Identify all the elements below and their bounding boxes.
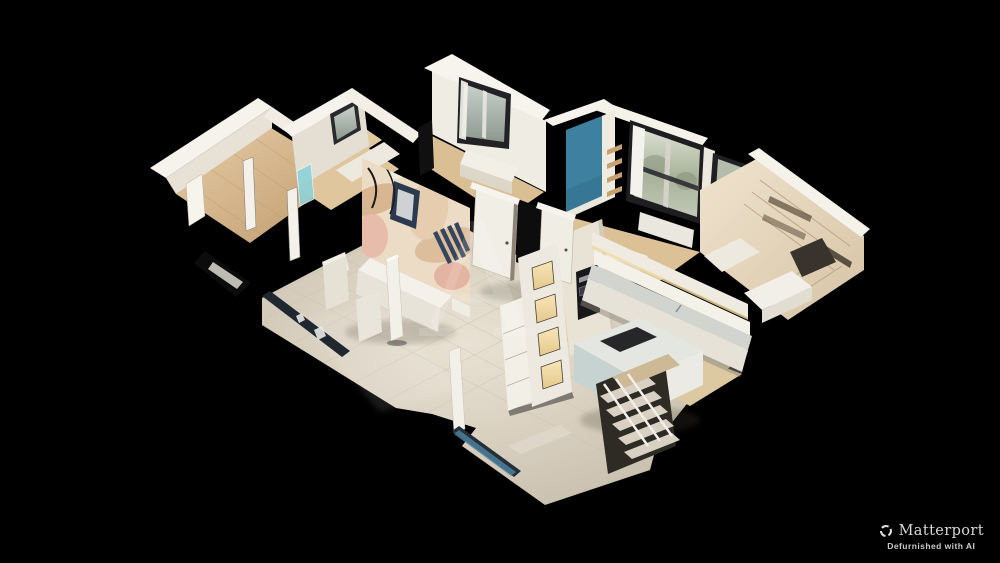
matterport-branding: Matterport Defurnished with AI bbox=[879, 523, 984, 551]
matterport-logo-icon bbox=[879, 524, 893, 538]
branding-tagline: Defurnished with AI bbox=[879, 541, 984, 551]
matterport-logo-text: Matterport bbox=[899, 523, 984, 539]
viewer-canvas[interactable]: A Matterport Defurnished with AI bbox=[0, 0, 1000, 563]
dollhouse-3d-view[interactable]: A bbox=[0, 0, 1000, 563]
watermark-letter: A bbox=[419, 190, 536, 374]
